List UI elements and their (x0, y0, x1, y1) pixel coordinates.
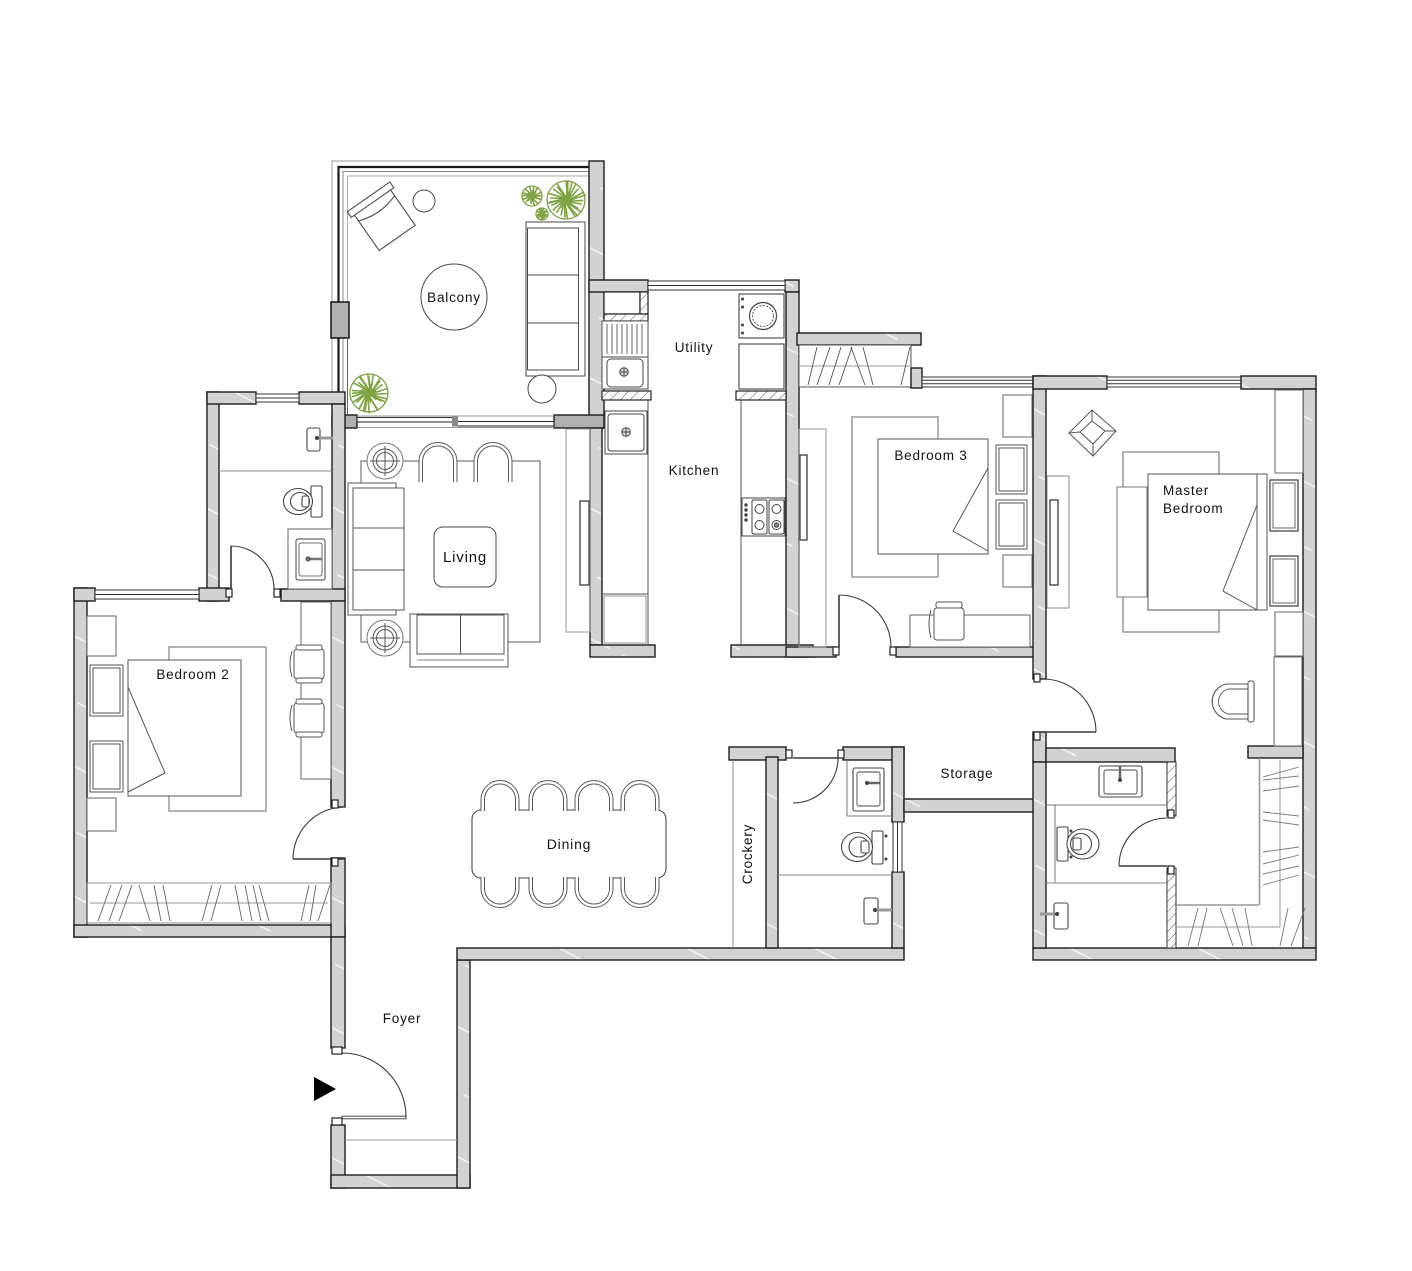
svg-text:Bedroom: Bedroom (1163, 501, 1223, 516)
svg-text:Crockery: Crockery (740, 824, 755, 884)
svg-text:Utility: Utility (675, 340, 714, 355)
svg-text:Master: Master (1163, 483, 1209, 498)
svg-text:Bedroom 3: Bedroom 3 (894, 448, 967, 463)
svg-text:Storage: Storage (941, 766, 994, 781)
svg-text:Living: Living (443, 549, 487, 566)
svg-text:Dining: Dining (547, 836, 592, 852)
svg-text:Balcony: Balcony (427, 290, 481, 305)
svg-text:Bedroom 2: Bedroom 2 (156, 667, 229, 682)
svg-text:Kitchen: Kitchen (669, 463, 720, 478)
svg-text:Foyer: Foyer (383, 1011, 422, 1026)
